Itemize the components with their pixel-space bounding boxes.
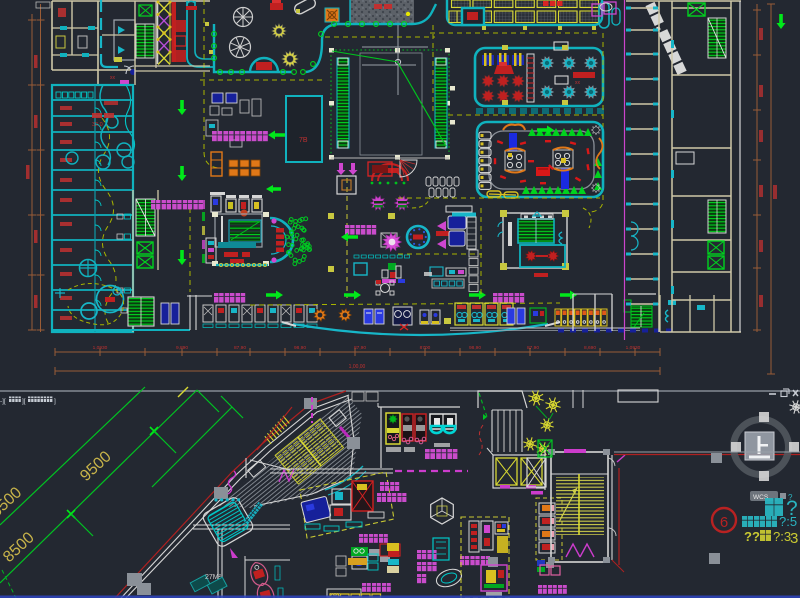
svg-text:87,90: 87,90 bbox=[234, 345, 246, 351]
svg-text:xx: xx bbox=[575, 80, 581, 86]
svg-text:?:3: ?:3 bbox=[773, 529, 791, 544]
svg-text:32.0: 32.0 bbox=[92, 122, 103, 128]
svg-text:8,690: 8,690 bbox=[584, 345, 596, 351]
svg-text:1,0930: 1,0930 bbox=[626, 345, 641, 351]
svg-text:1,00,00: 1,00,00 bbox=[349, 364, 366, 370]
svg-text:][: ][ bbox=[22, 398, 26, 405]
svg-text:87,90: 87,90 bbox=[354, 345, 366, 351]
svg-text:7B: 7B bbox=[299, 137, 308, 144]
svg-text:9,890: 9,890 bbox=[176, 345, 188, 351]
svg-text:27M²: 27M² bbox=[205, 574, 222, 581]
svg-text:87,90: 87,90 bbox=[527, 345, 539, 351]
svg-text:-][: -][ bbox=[0, 398, 6, 405]
svg-text:1,0930: 1,0930 bbox=[93, 345, 108, 351]
svg-text:8700: 8700 bbox=[420, 345, 431, 351]
svg-text:98,90: 98,90 bbox=[469, 345, 481, 351]
svg-text:3: 3 bbox=[790, 530, 798, 547]
svg-text:?:5: ?:5 bbox=[779, 514, 797, 529]
svg-text:xx: xx bbox=[110, 75, 116, 81]
svg-text:??: ?? bbox=[744, 529, 760, 544]
svg-text:6: 6 bbox=[720, 514, 728, 531]
svg-text:]: ] bbox=[54, 398, 56, 405]
svg-text:98,90: 98,90 bbox=[294, 345, 306, 351]
